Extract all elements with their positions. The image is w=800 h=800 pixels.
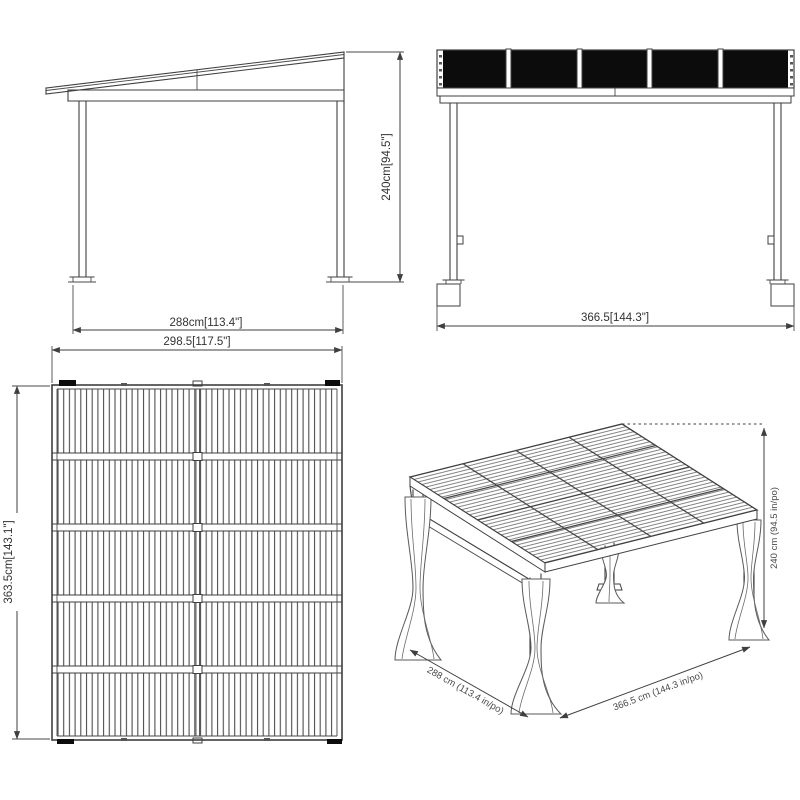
iso-dim-depth: 288 cm (113.4 in/po) bbox=[410, 650, 528, 717]
plan-slat-bands bbox=[57, 389, 337, 736]
plan-dim-width: 298.5[117.5"] bbox=[52, 336, 342, 383]
iso-roof bbox=[410, 424, 757, 572]
front-left-bracket bbox=[457, 236, 463, 244]
plan-width-label: 298.5[117.5"] bbox=[163, 336, 230, 348]
front-width-label: 366.5[144.3"] bbox=[581, 312, 649, 324]
plan-height-label: 363.5cm[143.1"] bbox=[3, 520, 15, 603]
side-width-label: 288cm[113.4"] bbox=[170, 317, 243, 329]
isometric-view: 240 cm (94.5 in/po) 288 cm (113.4 in/po)… bbox=[395, 424, 780, 718]
side-posts bbox=[79, 101, 344, 277]
side-feet bbox=[68, 277, 354, 282]
iso-dim-width: 366.5 cm (144.3 in/po) bbox=[560, 647, 750, 718]
front-elevation-view: 366.5[144.3"] bbox=[437, 49, 794, 331]
plan-dim-height: 363.5cm[143.1"] bbox=[3, 386, 50, 739]
side-dim-width: 288cm[113.4"] bbox=[73, 285, 343, 334]
iso-width-label: 366.5 cm (144.3 in/po) bbox=[612, 670, 705, 714]
front-feet bbox=[437, 280, 794, 306]
iso-depth-label: 288 cm (113.4 in/po) bbox=[425, 665, 506, 717]
side-roof bbox=[46, 52, 344, 103]
front-right-bracket bbox=[768, 236, 774, 244]
blueprint-canvas: 288cm[113.4"] 240cm[94.5"] bbox=[0, 0, 800, 800]
gazebo-dimension-drawing: { "drawing": { "colors": { "background":… bbox=[0, 0, 800, 800]
front-roof-band bbox=[437, 49, 794, 103]
side-dim-height: 240cm[94.5"] bbox=[346, 52, 404, 282]
roof-plan-view: 298.5[117.5"] 363.5cm[143.1"] bbox=[3, 336, 342, 744]
side-height-label: 240cm[94.5"] bbox=[381, 133, 393, 200]
front-dim-width: 366.5[144.3"] bbox=[437, 306, 794, 331]
iso-structure bbox=[395, 424, 769, 714]
side-elevation-view: 288cm[113.4"] 240cm[94.5"] bbox=[46, 52, 404, 334]
iso-height-label: 240 cm (94.5 in/po) bbox=[769, 487, 780, 569]
front-posts bbox=[450, 103, 781, 280]
